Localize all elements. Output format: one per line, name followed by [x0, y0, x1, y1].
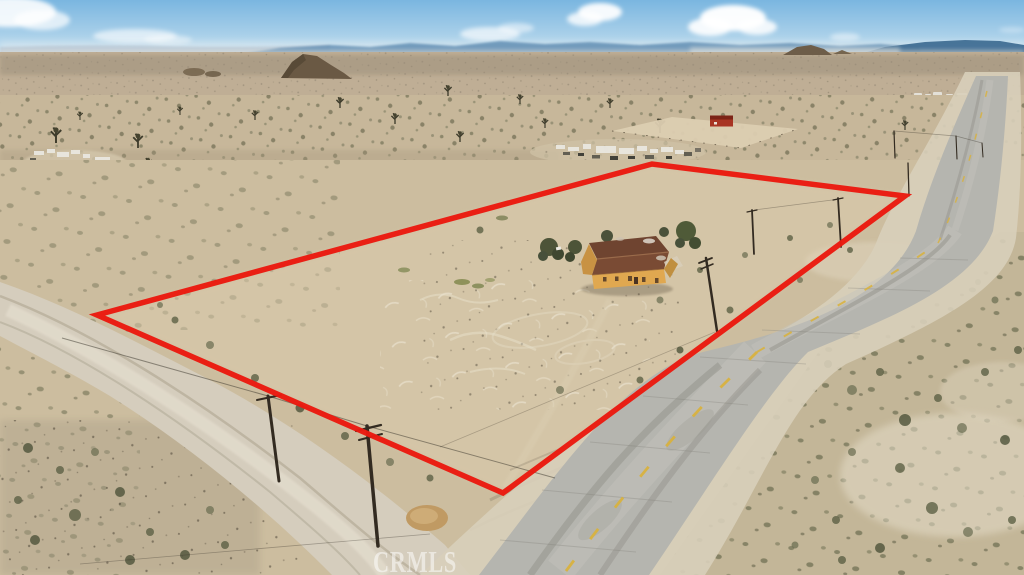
trailer	[83, 154, 90, 158]
mls-watermark: CRMLS	[373, 544, 457, 575]
grass-tuft	[485, 278, 495, 282]
grass-tuft	[454, 279, 470, 285]
vehicle	[666, 156, 672, 159]
grass-tuft	[398, 268, 410, 273]
vehicle	[583, 144, 591, 149]
vehicle	[695, 148, 701, 152]
trailer	[71, 150, 80, 154]
vehicle	[684, 152, 692, 156]
trailer	[57, 152, 69, 157]
rock-outcrop	[205, 71, 221, 77]
rv-trailer	[619, 148, 634, 154]
vehicle	[592, 155, 600, 159]
trailer	[47, 149, 55, 153]
trailer	[661, 147, 673, 152]
sand-pond-center	[410, 508, 438, 524]
barn-door	[714, 122, 717, 125]
rock-outcrop	[183, 68, 205, 76]
grass-tuft	[472, 284, 484, 289]
house-door	[634, 277, 638, 284]
roof-patch	[616, 237, 624, 241]
vehicle	[650, 149, 658, 153]
vehicle	[610, 156, 618, 160]
vehicle	[563, 152, 570, 155]
roof-patch	[656, 256, 666, 261]
vehicle	[578, 153, 584, 156]
vehicle	[568, 147, 579, 151]
vehicle	[628, 156, 635, 159]
red-barn-roof	[710, 116, 733, 120]
vehicle	[645, 155, 654, 159]
aerial-photo: CRMLS	[0, 0, 1024, 575]
trailer	[34, 151, 44, 155]
roof-patch	[643, 239, 655, 244]
vehicle	[556, 145, 565, 149]
vehicle	[637, 146, 647, 151]
rv-trailer	[596, 146, 616, 153]
grass-tuft	[496, 216, 508, 221]
vehicle	[675, 150, 684, 154]
